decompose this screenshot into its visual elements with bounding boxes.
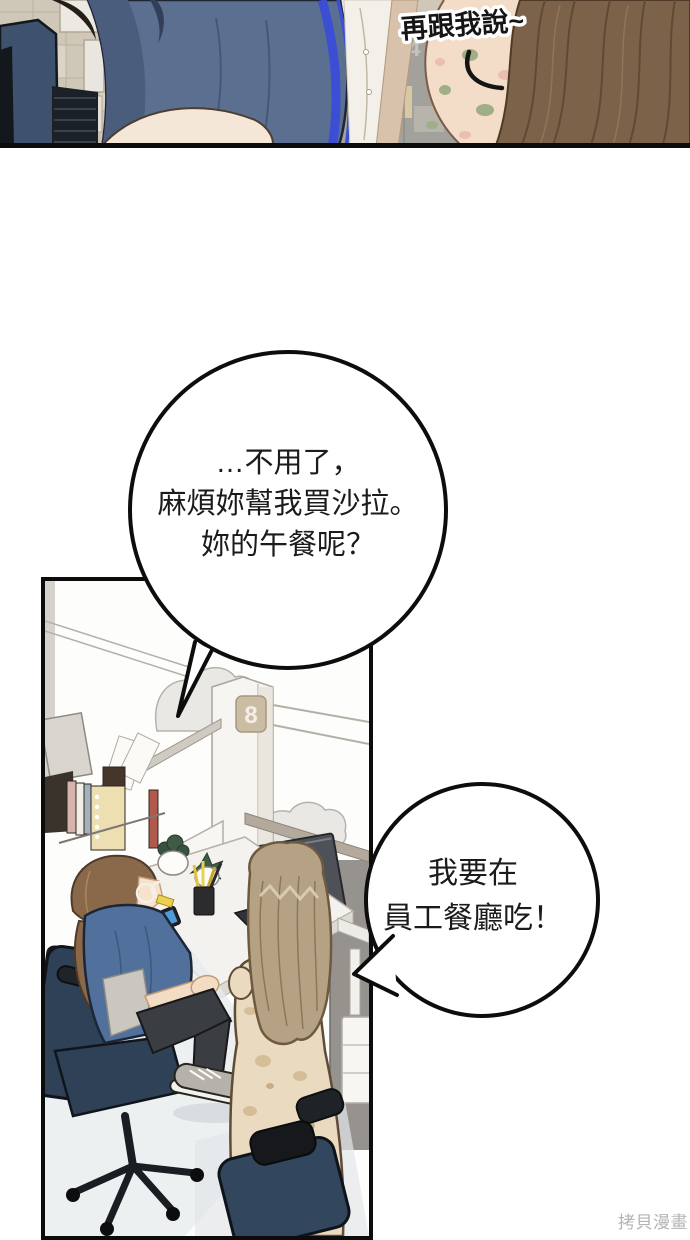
person-brown-hair: [495, 0, 690, 148]
comic-page: 3 4: [0, 0, 690, 1240]
bubble-main-line-1: …不用了，: [138, 443, 438, 484]
bubble-main-line-3: 妳的午餐呢？: [138, 525, 438, 566]
speech-bubble-main-text: …不用了， 麻煩妳幫我買沙拉。 妳的午餐呢？: [138, 443, 438, 566]
speech-bubble-reply-text: 我要在 員工餐廳吃！: [363, 851, 583, 941]
watermark: 拷貝漫畫: [618, 1208, 688, 1233]
panel-border: [0, 143, 690, 148]
bubble-reply-line-1: 我要在: [363, 851, 583, 896]
person-blue-jacket: [88, 0, 418, 148]
bubble-main-line-2: 麻煩妳幫我買沙拉。: [138, 484, 438, 525]
bubble-reply-line-2: 員工餐廳吃！: [363, 896, 583, 941]
panel-top: 3 4: [0, 0, 690, 148]
